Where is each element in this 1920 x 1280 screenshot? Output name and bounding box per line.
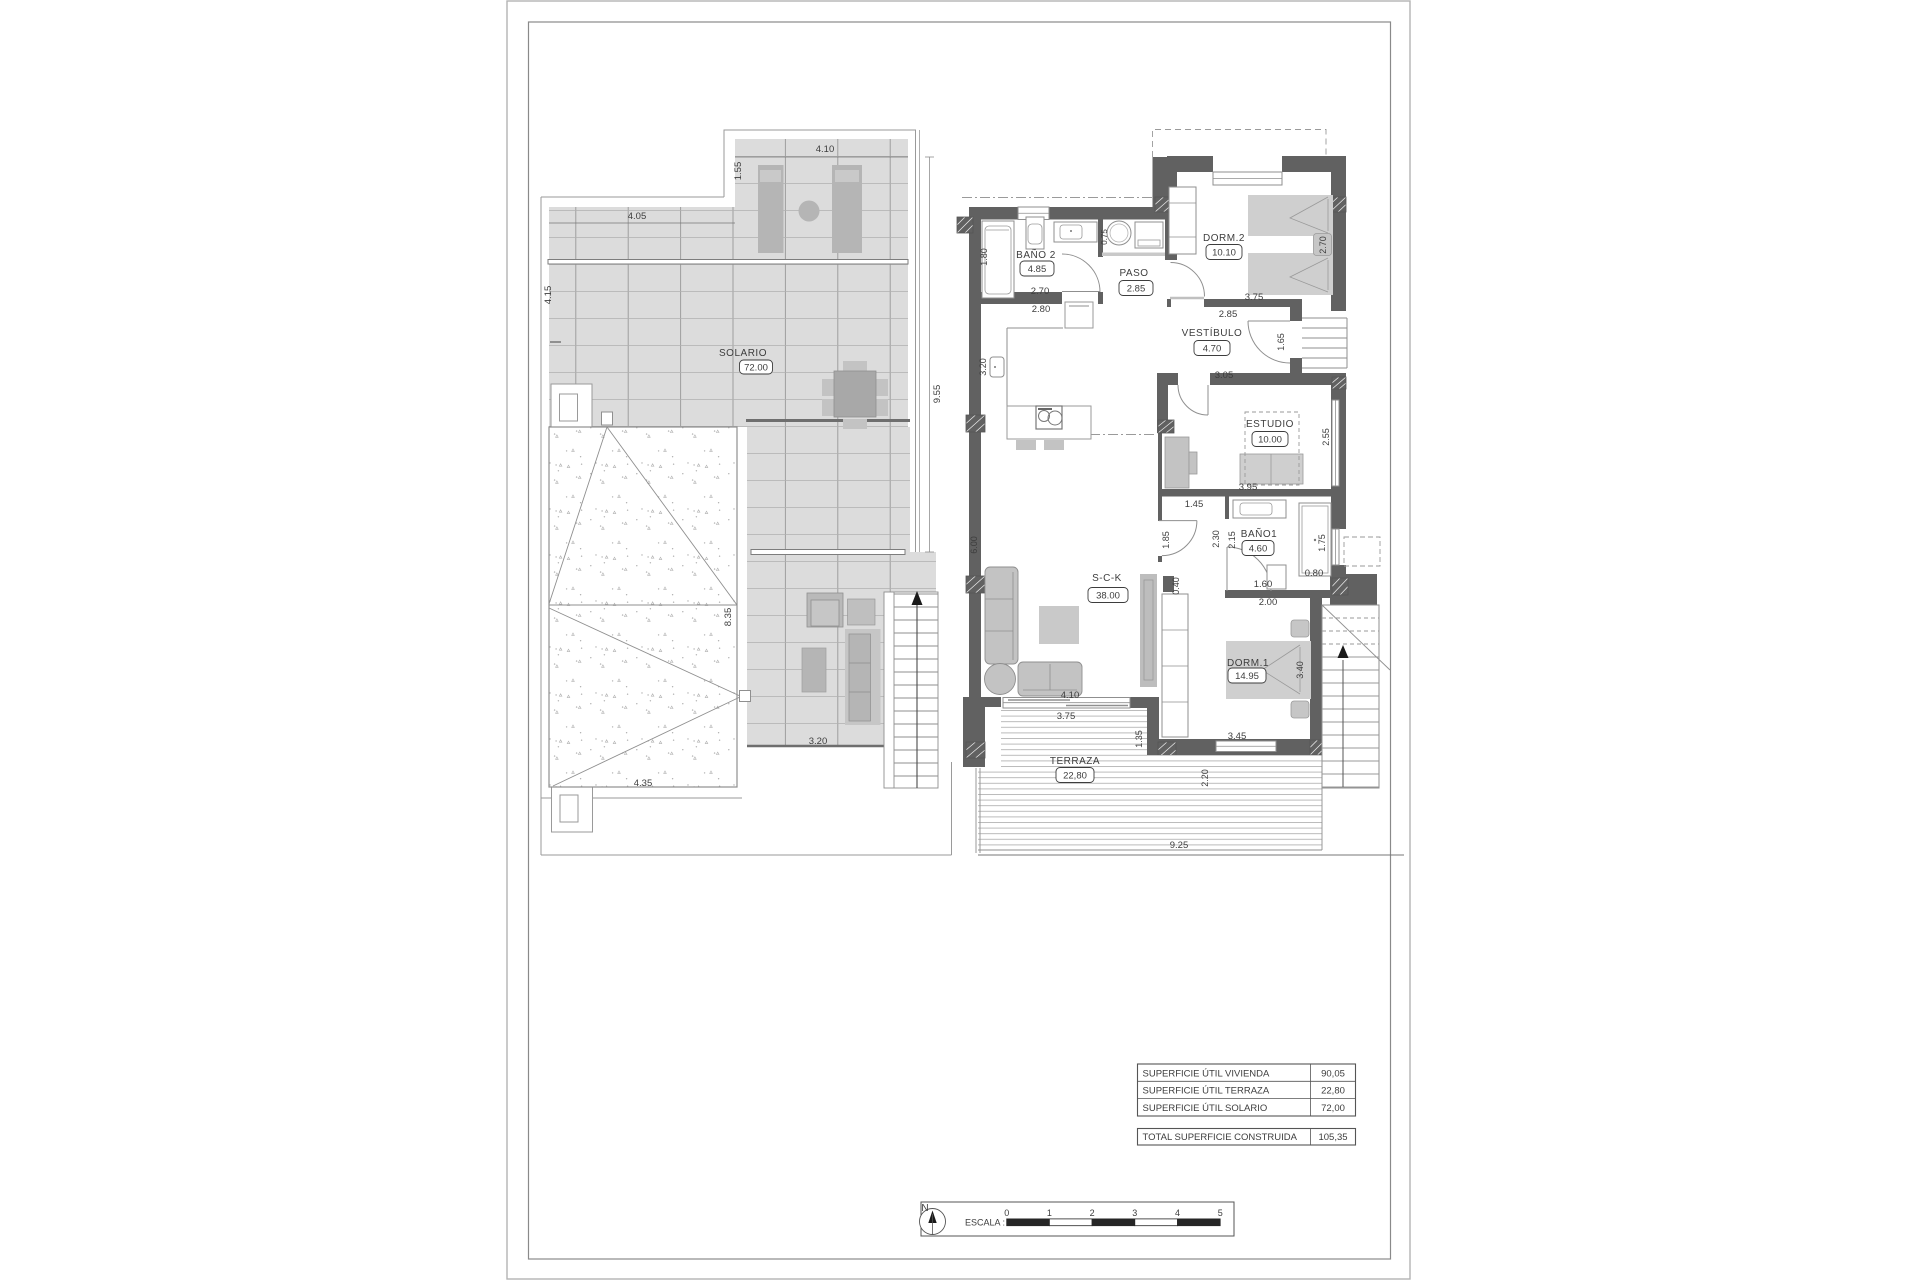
- svg-text:72,00: 72,00: [1321, 1103, 1345, 1114]
- svg-text:BAÑO 2: BAÑO 2: [1016, 248, 1056, 261]
- svg-text:0.40: 0.40: [1171, 577, 1181, 595]
- svg-text:105,35: 105,35: [1318, 1132, 1347, 1143]
- svg-text:3.75: 3.75: [1245, 292, 1264, 303]
- svg-text:4.10: 4.10: [1061, 690, 1080, 701]
- svg-text:1: 1: [1047, 1208, 1052, 1218]
- svg-text:N: N: [921, 1203, 928, 1214]
- svg-text:9.55: 9.55: [932, 385, 943, 404]
- svg-text:1.45: 1.45: [1185, 499, 1204, 510]
- svg-text:1.65: 1.65: [1276, 333, 1286, 351]
- svg-text:0: 0: [1004, 1208, 1009, 1218]
- svg-text:BAÑO1: BAÑO1: [1241, 527, 1277, 540]
- svg-text:14.95: 14.95: [1235, 671, 1259, 682]
- svg-text:2.85: 2.85: [1219, 309, 1238, 320]
- svg-text:2.85: 2.85: [1127, 283, 1146, 294]
- svg-text:22,80: 22,80: [1063, 770, 1087, 781]
- svg-text:2.70: 2.70: [1031, 286, 1050, 297]
- svg-text:6.00: 6.00: [969, 536, 979, 554]
- svg-text:22,80: 22,80: [1321, 1086, 1345, 1097]
- svg-text:8.35: 8.35: [723, 608, 734, 627]
- svg-text:1.75: 1.75: [1317, 534, 1327, 552]
- svg-text:4: 4: [1175, 1208, 1180, 1218]
- svg-text:10.10: 10.10: [1212, 247, 1236, 258]
- svg-text:DORM.1: DORM.1: [1227, 658, 1269, 669]
- svg-text:10.00: 10.00: [1258, 434, 1282, 445]
- svg-text:3.20: 3.20: [978, 358, 988, 376]
- svg-text:2: 2: [1090, 1208, 1095, 1218]
- svg-text:4.70: 4.70: [1203, 343, 1222, 354]
- svg-text:2.70: 2.70: [1318, 236, 1328, 254]
- svg-text:2.55: 2.55: [1321, 428, 1331, 446]
- svg-text:3.40: 3.40: [1295, 661, 1305, 679]
- svg-text:SUPERFICIE ÚTIL TERRAZA: SUPERFICIE ÚTIL TERRAZA: [1143, 1086, 1270, 1097]
- svg-text:4.35: 4.35: [634, 778, 653, 789]
- svg-text:2.80: 2.80: [1032, 304, 1051, 315]
- svg-text:72.00: 72.00: [744, 362, 768, 373]
- svg-text:4.85: 4.85: [1028, 264, 1047, 275]
- svg-text:4.05: 4.05: [628, 211, 647, 222]
- svg-text:VESTÍBULO: VESTÍBULO: [1182, 326, 1243, 339]
- svg-text:ESTUDIO: ESTUDIO: [1246, 419, 1294, 430]
- svg-text:3.05: 3.05: [1215, 370, 1234, 381]
- svg-text:3.45: 3.45: [1228, 731, 1247, 742]
- svg-text:1.60: 1.60: [1254, 579, 1273, 590]
- svg-text:4.10: 4.10: [816, 144, 835, 155]
- svg-text:3.75: 3.75: [1057, 711, 1076, 722]
- svg-text:0.75: 0.75: [1100, 229, 1109, 245]
- svg-text:1.85: 1.85: [1161, 531, 1171, 549]
- svg-text:2.30: 2.30: [1211, 530, 1221, 548]
- svg-text:SOLARIO: SOLARIO: [719, 348, 767, 359]
- svg-text:S-C-K: S-C-K: [1092, 573, 1122, 584]
- svg-text:1.35: 1.35: [1134, 730, 1144, 748]
- svg-text:PASO: PASO: [1119, 268, 1148, 279]
- svg-text:2.00: 2.00: [1259, 597, 1278, 608]
- svg-text:1.55: 1.55: [733, 162, 744, 181]
- svg-text:9.25: 9.25: [1170, 840, 1189, 851]
- svg-text:4.60: 4.60: [1249, 543, 1268, 554]
- svg-text:3.20: 3.20: [809, 736, 828, 747]
- svg-text:2.15: 2.15: [1227, 531, 1237, 549]
- svg-text:TERRAZA: TERRAZA: [1050, 756, 1100, 767]
- svg-text:5: 5: [1218, 1208, 1223, 1218]
- svg-text:SUPERFICIE ÚTIL VIVIENDA: SUPERFICIE ÚTIL VIVIENDA: [1143, 1068, 1271, 1079]
- svg-text:4.15: 4.15: [543, 286, 554, 305]
- svg-text:3: 3: [1132, 1208, 1137, 1218]
- svg-text:90,05: 90,05: [1321, 1068, 1345, 1079]
- svg-text:2.20: 2.20: [1200, 769, 1210, 787]
- svg-text:SUPERFICIE ÚTIL SOLARIO: SUPERFICIE ÚTIL SOLARIO: [1143, 1103, 1268, 1114]
- svg-text:DORM.2: DORM.2: [1203, 233, 1245, 244]
- svg-text:1.80: 1.80: [979, 248, 989, 266]
- svg-text:0.80: 0.80: [1305, 568, 1324, 579]
- svg-text:ESCALA :: ESCALA :: [965, 1218, 1005, 1228]
- svg-text:TOTAL SUPERFICIE CONSTRUIDA: TOTAL SUPERFICIE CONSTRUIDA: [1143, 1132, 1298, 1143]
- svg-text:38.00: 38.00: [1096, 590, 1120, 601]
- svg-text:3.95: 3.95: [1239, 482, 1258, 493]
